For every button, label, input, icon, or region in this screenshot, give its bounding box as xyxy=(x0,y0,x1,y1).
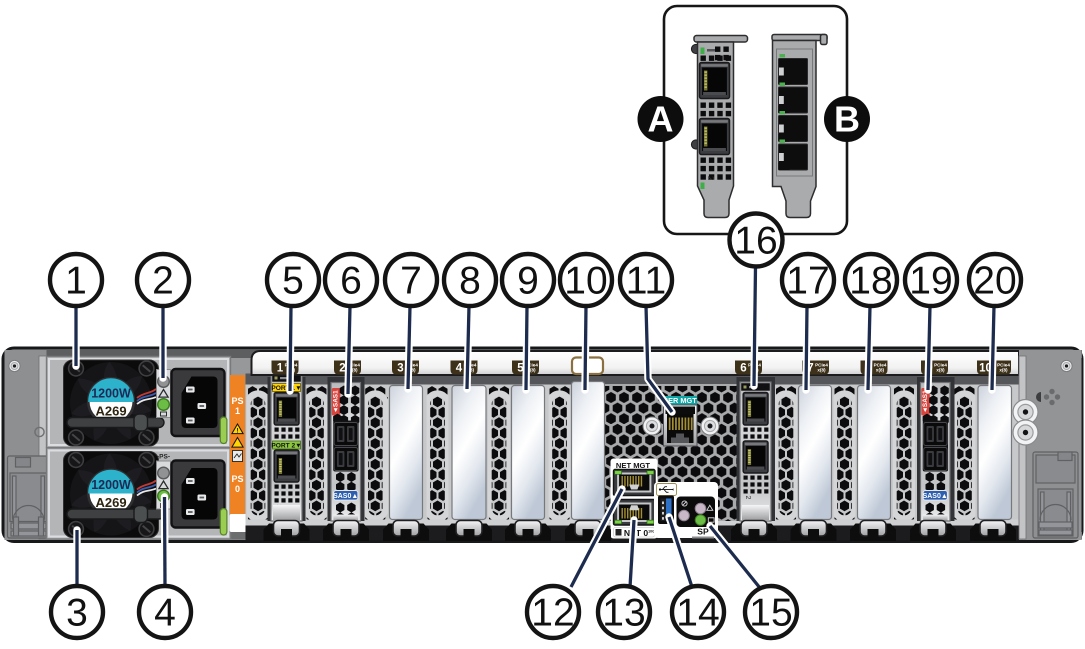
svg-text:1: 1 xyxy=(235,406,240,416)
svg-text:15: 15 xyxy=(749,592,792,635)
svg-text:A269: A269 xyxy=(95,495,126,510)
svg-text:10: 10 xyxy=(564,260,607,303)
svg-text:1: 1 xyxy=(277,363,284,375)
svg-text:2: 2 xyxy=(339,363,345,375)
svg-text:SAS0▲: SAS0▲ xyxy=(923,493,948,500)
svg-text:20: 20 xyxy=(973,260,1016,303)
svg-text:x(8): x(8) xyxy=(936,368,945,373)
svg-text:x(8): x(8) xyxy=(999,368,1008,373)
svg-text:6: 6 xyxy=(340,260,362,303)
svg-text:7: 7 xyxy=(400,260,422,303)
svg-text:3: 3 xyxy=(397,363,403,375)
svg-text:0: 0 xyxy=(235,484,240,494)
svg-text:B: B xyxy=(834,99,860,140)
svg-text:6: 6 xyxy=(740,363,746,375)
svg-text:4: 4 xyxy=(154,592,176,635)
svg-text:17: 17 xyxy=(786,260,829,303)
svg-text:4: 4 xyxy=(456,363,463,375)
svg-text:A: A xyxy=(648,99,674,140)
svg-text:9: 9 xyxy=(517,260,539,303)
svg-text:-PS-: -PS- xyxy=(157,454,170,461)
svg-text:◄SAS1: ◄SAS1 xyxy=(332,390,339,413)
svg-text:2: 2 xyxy=(744,496,751,500)
svg-text:1200W: 1200W xyxy=(91,387,131,401)
svg-text:PS: PS xyxy=(231,474,243,484)
svg-text:11: 11 xyxy=(626,260,667,303)
svg-text:1: 1 xyxy=(65,260,87,303)
svg-text:PS: PS xyxy=(231,396,243,406)
svg-text:PORT 2▼: PORT 2▼ xyxy=(271,442,301,449)
svg-text:19: 19 xyxy=(909,260,952,303)
svg-text:3: 3 xyxy=(66,592,88,635)
svg-text:8: 8 xyxy=(459,260,481,303)
svg-text:2: 2 xyxy=(152,260,174,303)
svg-text:14: 14 xyxy=(676,592,719,635)
svg-text:x(8): x(8) xyxy=(817,368,826,373)
svg-text:1200W: 1200W xyxy=(91,478,131,492)
svg-text:16: 16 xyxy=(734,220,777,263)
svg-text:x(8): x(8) xyxy=(876,368,885,373)
svg-text:NET MGT: NET MGT xyxy=(616,461,651,470)
svg-text:!: ! xyxy=(236,428,238,435)
svg-text:SAS0▲: SAS0▲ xyxy=(333,493,358,500)
svg-text:2: 2 xyxy=(706,176,715,181)
svg-text:13: 13 xyxy=(602,592,645,635)
svg-text:A269: A269 xyxy=(95,404,126,419)
svg-text:12: 12 xyxy=(531,592,574,635)
svg-text:18: 18 xyxy=(849,260,892,303)
svg-text:5: 5 xyxy=(282,260,304,303)
